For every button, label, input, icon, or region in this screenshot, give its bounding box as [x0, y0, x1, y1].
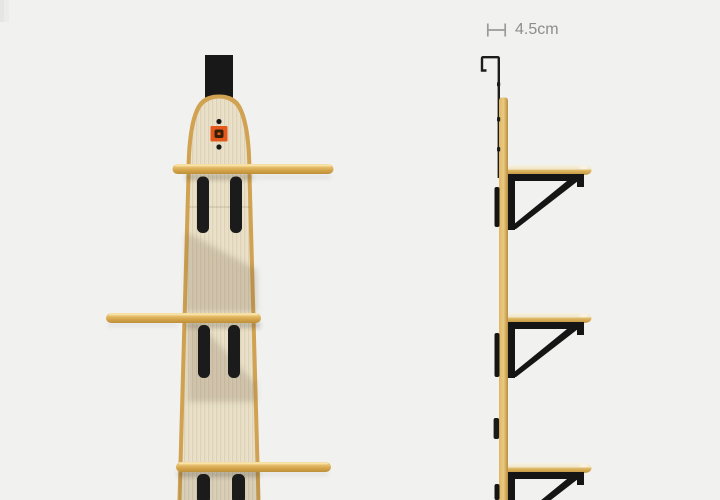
door-hook-icon [482, 57, 499, 178]
shelf-middle-highlight [109, 314, 258, 316]
side-shelf-bottom [495, 463, 592, 500]
product-image-canvas: 4.5cm [0, 0, 720, 500]
slot-edge-icon [494, 418, 500, 439]
screw-dot-icon [497, 147, 500, 152]
shelf1-contact-shadow [186, 174, 253, 180]
screw-dot-icon [216, 144, 221, 149]
bg-shadow [108, 323, 178, 327]
slot-icon [197, 177, 209, 234]
side-shelf-middle [495, 313, 592, 378]
bg-shadow [262, 472, 328, 476]
shelf-top-highlight [175, 165, 331, 167]
slot-icon [232, 474, 245, 500]
width-measure-icon [486, 22, 507, 38]
slot-icon [228, 325, 240, 378]
slot-icon [197, 474, 210, 500]
screw-dot-icon [216, 119, 221, 124]
cat-tree-product-render [0, 0, 720, 500]
dimension-value: 4.5cm [515, 21, 559, 39]
slot-icon [230, 177, 242, 234]
shelf-bottom-highlight [179, 463, 328, 465]
slot-icon [198, 325, 210, 378]
screw-dot-icon [497, 82, 500, 87]
side-shelf-top [495, 165, 592, 230]
front-view [106, 55, 334, 500]
board-side-edge [499, 98, 508, 500]
brand-logo-badge [211, 126, 228, 142]
side-view [482, 57, 592, 500]
screw-dot-icon [497, 117, 500, 122]
bg-shadow [255, 175, 331, 179]
dimension-annotation: 4.5cm [486, 21, 559, 39]
